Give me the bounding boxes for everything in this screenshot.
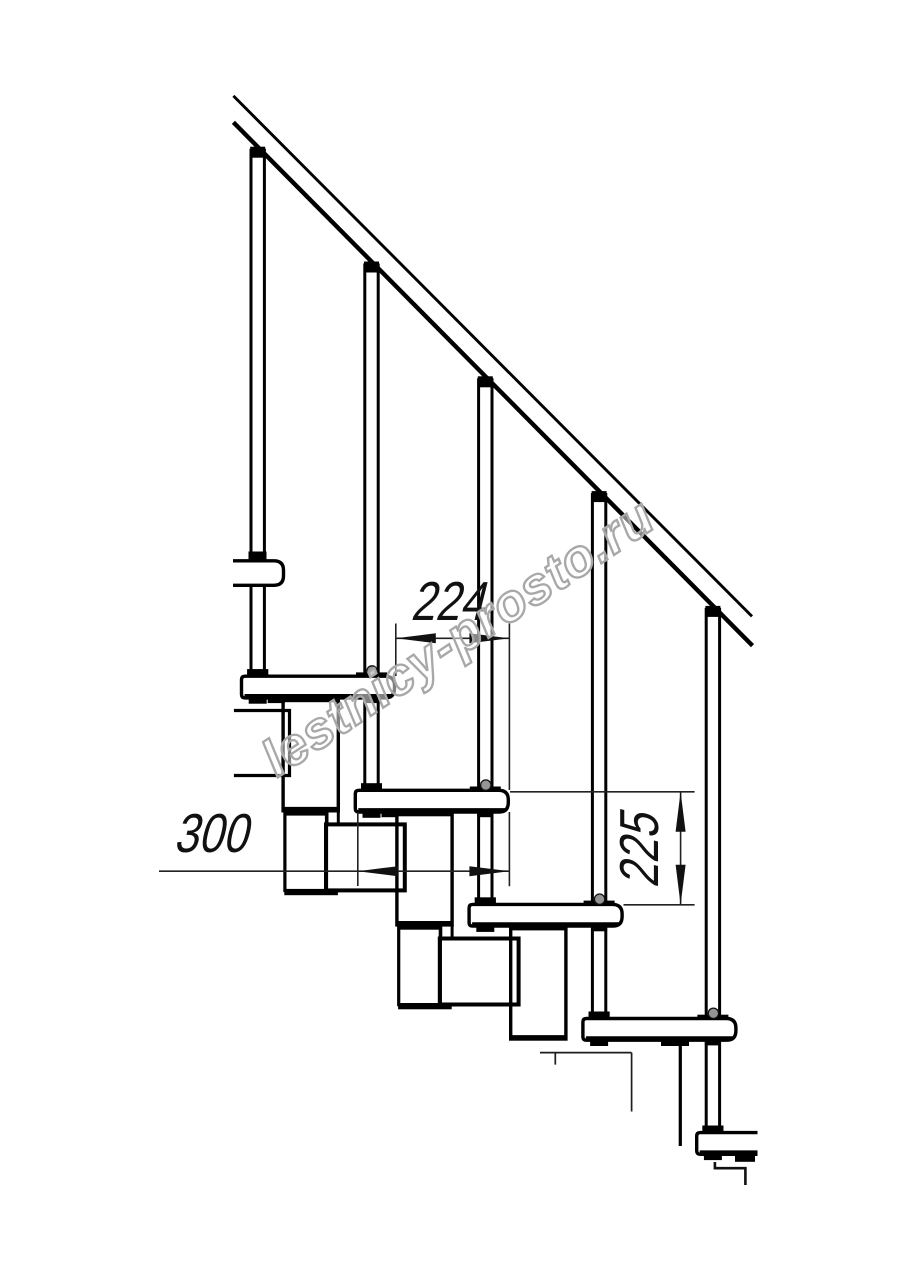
svg-text:225: 225 bbox=[608, 802, 670, 891]
svg-text:300: 300 bbox=[170, 802, 259, 864]
